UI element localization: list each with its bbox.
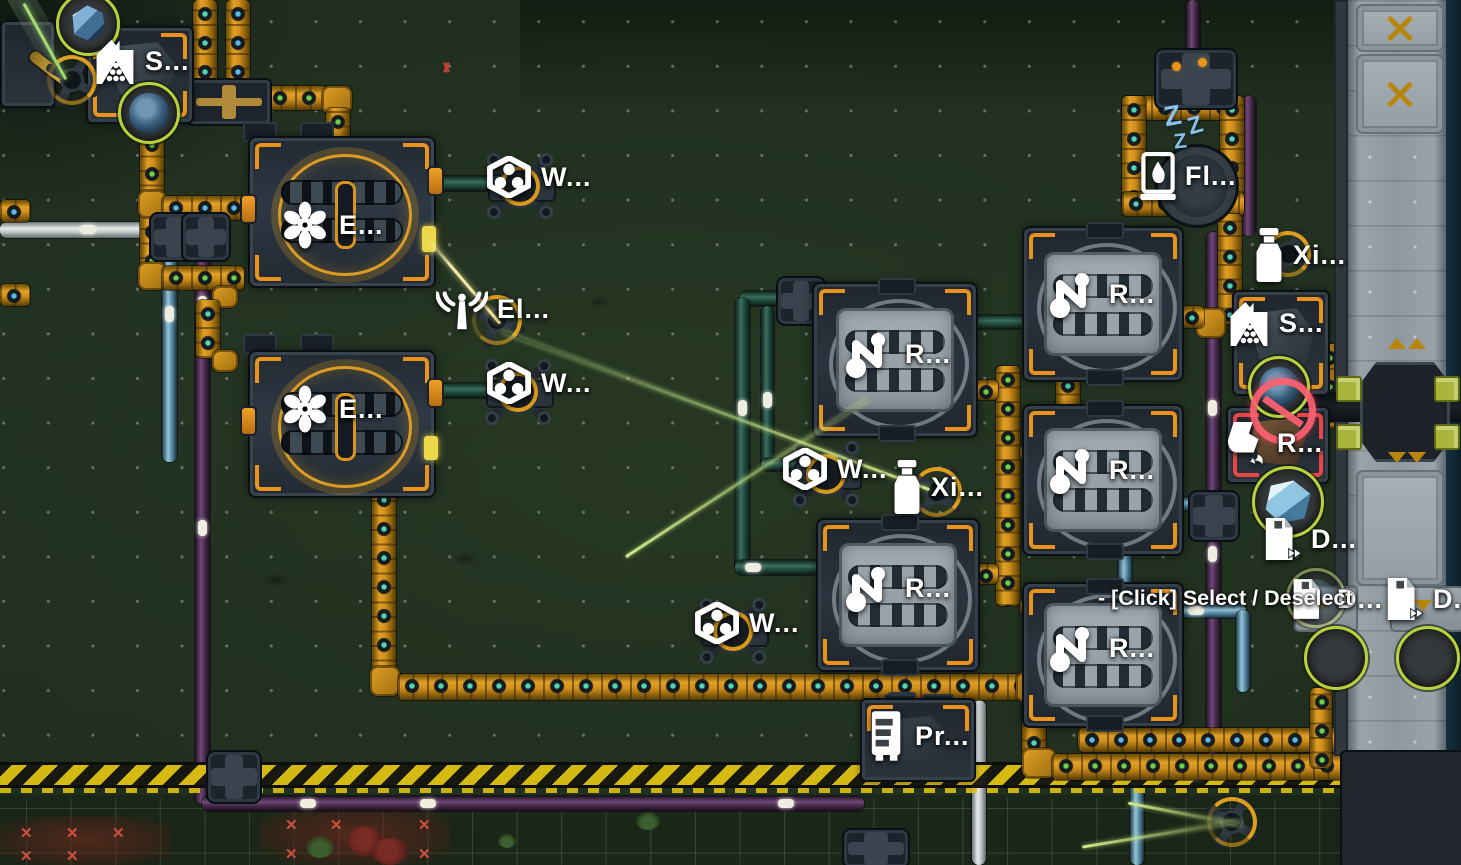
conveyor-belt[interactable] (1052, 754, 1344, 780)
grass-tuft (636, 812, 660, 830)
gold-chevron (1388, 452, 1406, 463)
blocked-x-decal: ✕ (20, 847, 33, 865)
corner-accent (403, 143, 429, 169)
corner-accent (255, 465, 281, 491)
conveyor-belt[interactable] (266, 86, 328, 110)
machine-tab (1086, 222, 1124, 239)
pipe-cargo (198, 520, 207, 536)
label-reaction[interactable]: R... (1048, 444, 1155, 496)
machine-tab (1086, 715, 1124, 732)
pipe-cargo (165, 306, 174, 322)
corner-accent (255, 143, 281, 169)
label-doc[interactable]: D... (1384, 576, 1461, 622)
pipe-junction[interactable] (181, 212, 231, 262)
label-text: El... (497, 296, 550, 323)
ore-image (129, 93, 168, 132)
machine-tab (1086, 543, 1124, 560)
label-assembler[interactable]: E... (280, 384, 384, 434)
label-text: W... (541, 164, 592, 191)
belt-splitter[interactable] (186, 78, 272, 126)
cursor-tooltip: - [Click] Select / Deselect (1098, 586, 1353, 611)
corner-accent (255, 357, 281, 383)
gold-x-clip (1358, 56, 1442, 132)
conveyor-belt[interactable] (193, 0, 217, 84)
platform-panel (1356, 4, 1444, 52)
label-text: E... (339, 212, 384, 239)
label-flame[interactable]: Fl... (1140, 152, 1237, 200)
pinwheel-icon (280, 200, 330, 250)
doc-arrows-icon (1262, 516, 1302, 562)
marker-square (1336, 376, 1362, 402)
gold-x-clip (1358, 6, 1442, 50)
game-viewport: ✕ ✕ ✕ ✕ ✕ ✕ ✕ ✕ ✕ ✕ (0, 0, 1461, 865)
hex-nodes-icon (486, 156, 532, 198)
machine-tab (1086, 369, 1124, 386)
corner-accent (403, 255, 429, 281)
conveyor-belt[interactable] (996, 366, 1020, 606)
molecule-icon (844, 562, 896, 614)
hex-nodes-icon (694, 602, 740, 644)
pipe-cargo (300, 799, 316, 808)
hex-nodes-icon (782, 448, 828, 490)
conveyor-belt[interactable] (372, 486, 396, 676)
pipe-segment[interactable] (735, 298, 750, 574)
tesla-tower[interactable] (1204, 794, 1260, 850)
label-xi[interactable]: Xi... (892, 460, 984, 514)
fractionator-icon (868, 708, 906, 764)
blocked-x-decal: ✕ (20, 824, 33, 842)
storage-icon (94, 38, 136, 84)
label-doc[interactable]: D... (1262, 516, 1357, 562)
pipe-cargo (738, 400, 747, 416)
blocked-x-decal: ✕ (330, 816, 343, 834)
antenna-icon (436, 284, 488, 334)
boundary-dashed-line (0, 788, 1345, 793)
machine-light (1172, 62, 1181, 71)
pipe-cargo (420, 799, 436, 808)
belt-corner[interactable] (370, 666, 400, 696)
pipe-segment[interactable] (1236, 610, 1250, 692)
label-text: W... (837, 456, 888, 483)
label-xi[interactable]: Xi... (1254, 228, 1346, 282)
label-text: R... (905, 341, 951, 368)
ore-image (1316, 638, 1357, 679)
pipe-cargo (763, 392, 772, 408)
platform-panel (1356, 470, 1444, 586)
label-text: W... (749, 610, 800, 637)
label-tesla[interactable]: El... (436, 284, 550, 334)
red-sprout (440, 62, 454, 76)
pipe-segment[interactable] (1242, 96, 1256, 236)
bottle-icon (1254, 228, 1284, 282)
label-text: S... (145, 48, 190, 75)
label-wireless[interactable]: W... (782, 448, 888, 490)
platform-panel (1356, 54, 1444, 134)
label-wireless[interactable]: W... (486, 156, 592, 198)
label-text: R... (1109, 635, 1155, 662)
molecule-icon (1048, 622, 1100, 674)
item-marker-green-crystal[interactable] (1304, 626, 1368, 690)
laser-emitter-node (424, 436, 438, 460)
bottle-icon (892, 460, 922, 514)
ore-image (1408, 638, 1449, 679)
pipe-cargo (80, 225, 96, 234)
pinwheel-icon (280, 384, 330, 434)
laser-emitter-node (422, 226, 436, 252)
molecule-icon (844, 328, 896, 380)
pipe-pump[interactable] (206, 750, 262, 804)
label-text: D... (1311, 526, 1357, 553)
label-text: Xi... (1293, 242, 1346, 269)
sleep-icon: Z (1173, 129, 1188, 154)
machine-tab (1086, 400, 1124, 417)
storage-icon (1228, 300, 1270, 346)
item-marker-green-crystal[interactable] (1396, 626, 1460, 690)
tower-core (1223, 813, 1241, 831)
pipe-cargo (1208, 546, 1217, 562)
label-text: Pr... (915, 723, 970, 750)
label-text: Xi... (931, 474, 984, 501)
label-refinery[interactable]: R... (1226, 420, 1323, 466)
label-text: R... (1109, 281, 1155, 308)
blocked-x-decal: ✕ (285, 816, 298, 834)
conveyor-belt[interactable] (196, 300, 220, 358)
corner-accent (403, 357, 429, 383)
label-text: W... (541, 370, 592, 397)
molecule-icon (1048, 268, 1100, 320)
conveyor-belt[interactable] (226, 0, 250, 84)
machine-port (429, 380, 442, 406)
pipe-cargo (1208, 400, 1217, 416)
ground-blemish (588, 296, 610, 308)
machine-tab (878, 278, 916, 295)
machine-light (1198, 58, 1207, 67)
label-storage[interactable]: S... (1228, 300, 1324, 346)
platform-dock[interactable] (1340, 750, 1461, 865)
doc-arrows-icon (1384, 576, 1424, 622)
label-text: R... (1109, 457, 1155, 484)
label-assembler[interactable]: E... (280, 200, 384, 250)
blocked-x-decal: ✕ (418, 816, 431, 834)
gold-chevron (1408, 452, 1426, 463)
marker-square (1434, 424, 1460, 450)
conveyor-belt[interactable] (0, 200, 30, 222)
belt-corner[interactable] (1022, 748, 1056, 778)
label-reaction[interactable]: R... (1048, 622, 1155, 674)
label-text: Fl... (1185, 163, 1237, 190)
machine-port (242, 408, 255, 434)
label-reaction[interactable]: R... (844, 328, 951, 380)
tower-core (63, 71, 81, 89)
marker-square (1434, 376, 1460, 402)
marker-square (1336, 424, 1362, 450)
machine-tab (881, 659, 919, 676)
grass-tuft (306, 836, 334, 858)
ground-blemish (262, 572, 292, 588)
label-storage[interactable]: S... (94, 38, 190, 84)
conveyor-belt[interactable] (1310, 688, 1332, 768)
tesla-tower[interactable] (44, 52, 100, 108)
ground-blemish (452, 552, 478, 566)
refinery-icon (1226, 420, 1268, 466)
label-text: E... (339, 396, 384, 423)
label-text: R... (905, 575, 951, 602)
blocked-x-decal: ✕ (112, 824, 125, 842)
belt-corner[interactable] (212, 350, 238, 372)
blocked-x-decal: ✕ (418, 845, 431, 863)
gold-chevron (1408, 338, 1426, 349)
pipe-cargo (745, 563, 761, 572)
molecule-icon (1048, 444, 1100, 496)
corner-accent (403, 465, 429, 491)
label-processor[interactable]: Pr... (868, 708, 970, 764)
machine-port (242, 196, 255, 222)
red-bush (372, 838, 408, 865)
pipe-junction[interactable] (1188, 490, 1240, 542)
gold-chevron (1388, 338, 1406, 349)
grass-tuft (498, 834, 516, 848)
item-marker-ore[interactable] (118, 82, 180, 144)
machine-port (429, 168, 442, 194)
pipe-segment[interactable] (761, 306, 774, 468)
machine-tab (878, 425, 916, 442)
pipe-cargo (778, 799, 794, 808)
label-wireless[interactable]: W... (694, 602, 800, 644)
label-reaction[interactable]: R... (844, 562, 951, 614)
blocked-x-decal: ✕ (285, 845, 298, 863)
flame-plaque-icon (1140, 152, 1176, 200)
label-wireless[interactable]: W... (486, 362, 592, 404)
label-text: D... (1433, 586, 1461, 613)
corner-accent (255, 255, 281, 281)
conveyor-belt[interactable] (0, 284, 30, 306)
blocked-x-decal: ✕ (66, 824, 79, 842)
blocked-x-decal: ✕ (66, 847, 79, 865)
label-text: S... (1279, 310, 1324, 337)
label-text: R... (1277, 430, 1323, 457)
hex-nodes-icon (486, 362, 532, 404)
label-reaction[interactable]: R... (1048, 268, 1155, 320)
pipe-machine[interactable] (842, 828, 910, 865)
